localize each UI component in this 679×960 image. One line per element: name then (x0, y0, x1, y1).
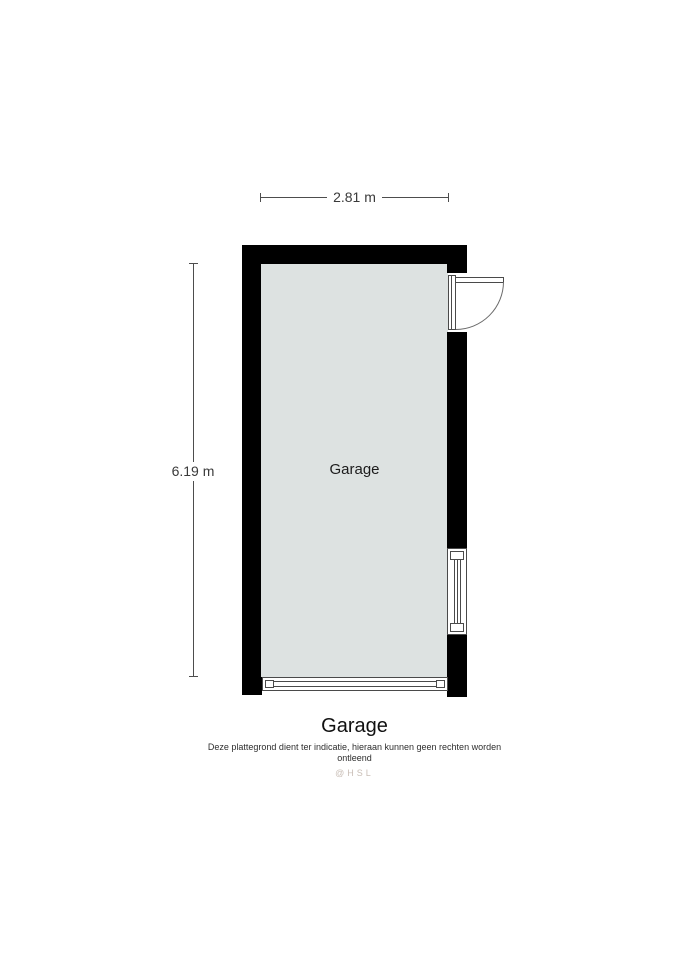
door-frame-line (451, 276, 452, 329)
garage-room-plan: Garage (242, 245, 467, 697)
wall-right-middle (447, 332, 467, 548)
watermark-logo: @HSL (192, 768, 517, 779)
height-dimension-tick-bottom (189, 676, 198, 677)
plan-title: Garage (192, 713, 517, 739)
garage-door-cap-right (436, 680, 445, 688)
garage-door-line (274, 686, 436, 687)
room-label: Garage (329, 461, 379, 478)
window (447, 548, 467, 635)
window-pane-line (460, 559, 461, 624)
floorplan-canvas: 2.81 m 6.19 m (0, 0, 679, 960)
height-dimension-tick-top (189, 263, 198, 264)
window-cap-bottom (450, 623, 464, 632)
wall-right-upper (447, 245, 467, 273)
wall-left (242, 245, 262, 695)
disclaimer-text: Deze plattegrond dient ter indicatie, hi… (192, 742, 517, 764)
height-dimension-label: 6.19 m (166, 462, 221, 481)
wall-right-lower (447, 635, 467, 697)
garage-door-cap-left (265, 680, 274, 688)
width-dimension-label: 2.81 m (327, 188, 382, 207)
wall-top (242, 245, 467, 265)
door-swing-arc-icon (454, 276, 510, 334)
window-pane-line (454, 559, 455, 624)
caption: Garage Deze plattegrond dient ter indica… (192, 713, 517, 779)
garage-door-line (274, 681, 436, 682)
window-pane-line (457, 559, 458, 624)
garage-door (262, 677, 448, 691)
